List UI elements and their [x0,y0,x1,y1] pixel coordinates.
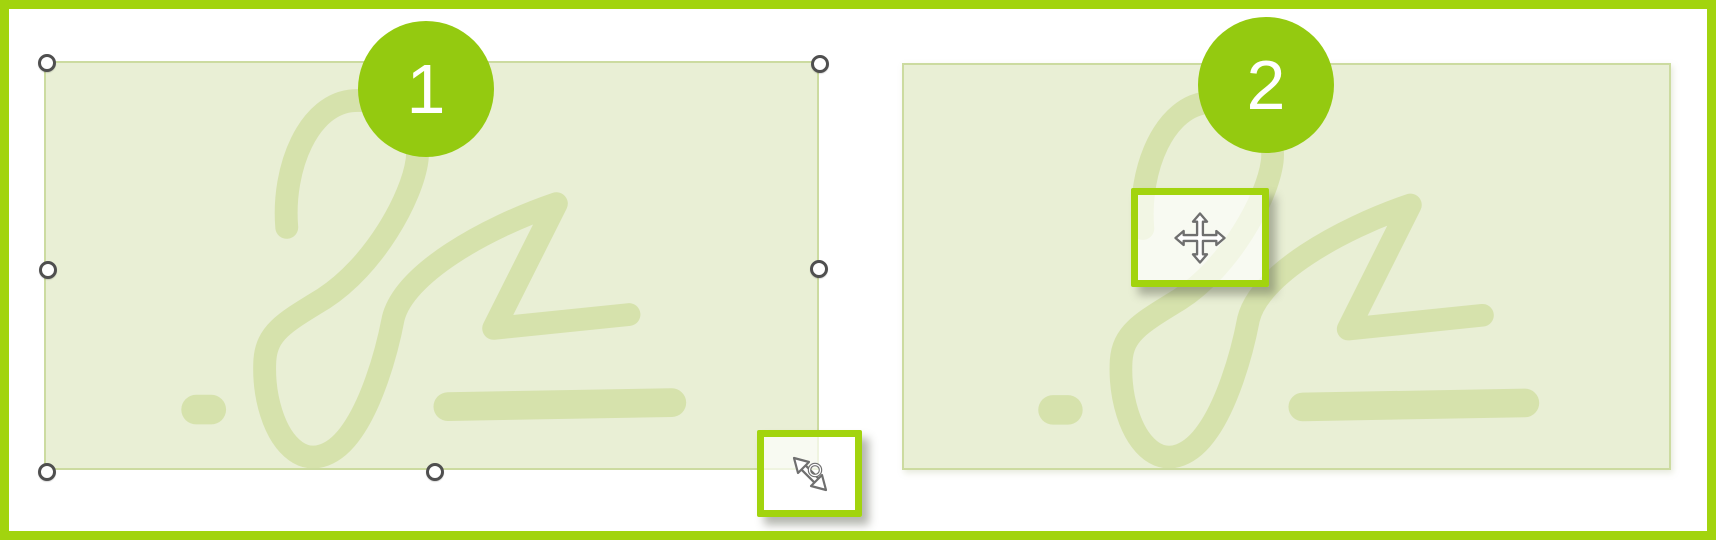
step-1-number: 1 [407,49,446,129]
selection-handle-bottom-left[interactable] [38,463,56,481]
selection-handle-top-right[interactable] [811,55,829,73]
resize-cursor-callout [757,430,862,517]
step-2-number: 2 [1247,45,1286,125]
selection-handle-bottom-center[interactable] [426,463,444,481]
move-cursor-callout [1131,188,1269,287]
tutorial-figure-frame: 1 2 [0,0,1716,540]
selection-handle-top-left[interactable] [38,54,56,72]
move-cursor-icon [1172,210,1228,266]
diagonal-resize-cursor-icon [788,452,832,496]
step-1-badge: 1 [358,21,494,157]
selection-handle-middle-left[interactable] [39,261,57,279]
selection-handle-middle-right[interactable] [810,260,828,278]
step-2-badge: 2 [1198,17,1334,153]
